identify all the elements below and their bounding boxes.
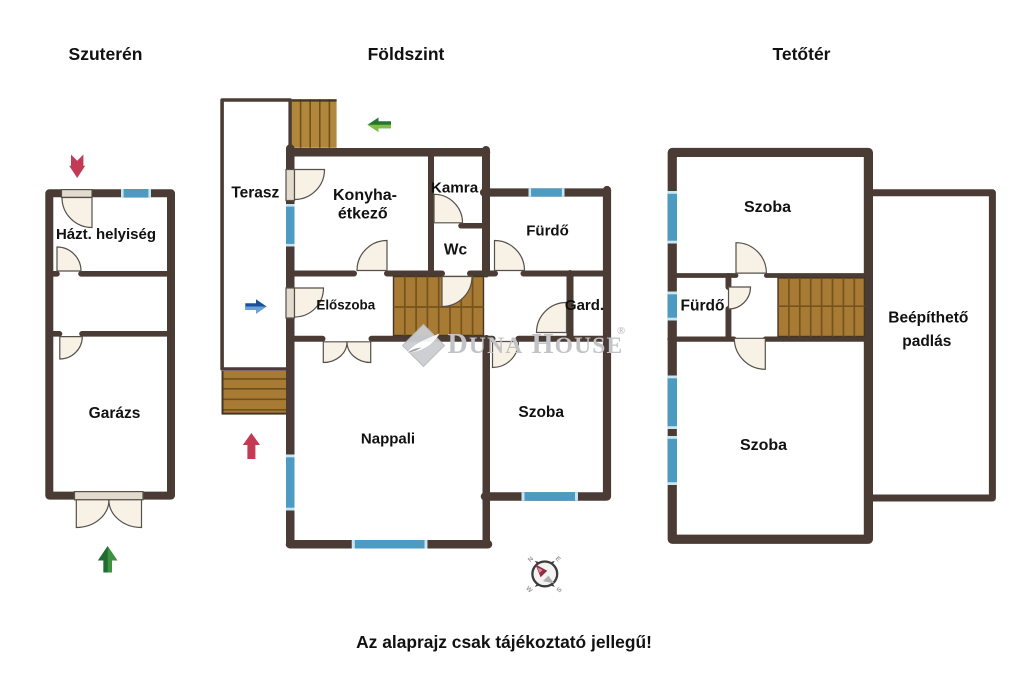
svg-text:étkező: étkező — [338, 206, 388, 223]
svg-text:Kamra: Kamra — [431, 180, 479, 197]
svg-text:Az alaprajz csak tájékoztató j: Az alaprajz csak tájékoztató jellegű! — [356, 632, 652, 652]
svg-text:Előszoba: Előszoba — [316, 298, 375, 313]
svg-text:®: ® — [617, 325, 625, 337]
svg-text:Wc: Wc — [444, 242, 468, 259]
svg-text:Szuterén: Szuterén — [69, 44, 143, 64]
svg-text:Fürdő: Fürdő — [526, 222, 569, 239]
svg-text:Szoba: Szoba — [740, 437, 787, 454]
svg-text:Szoba: Szoba — [744, 199, 791, 216]
svg-text:Terasz: Terasz — [231, 185, 279, 202]
svg-text:Gard.: Gard. — [565, 297, 604, 314]
svg-text:Szoba: Szoba — [518, 404, 564, 421]
svg-text:Garázs: Garázs — [89, 405, 141, 422]
svg-text:Nappali: Nappali — [361, 430, 415, 447]
svg-text:Házt. helyiség: Házt. helyiség — [56, 226, 156, 243]
svg-text:Fürdő: Fürdő — [681, 298, 725, 315]
svg-text:Földszint: Földszint — [368, 44, 445, 64]
svg-text:Tetőtér: Tetőtér — [772, 44, 830, 64]
svg-text:DUNA HOUSE: DUNA HOUSE — [448, 329, 624, 360]
svg-text:padlás: padlás — [902, 333, 951, 350]
svg-text:Beépíthető: Beépíthető — [888, 310, 968, 327]
svg-text:Konyha-: Konyha- — [333, 187, 397, 204]
